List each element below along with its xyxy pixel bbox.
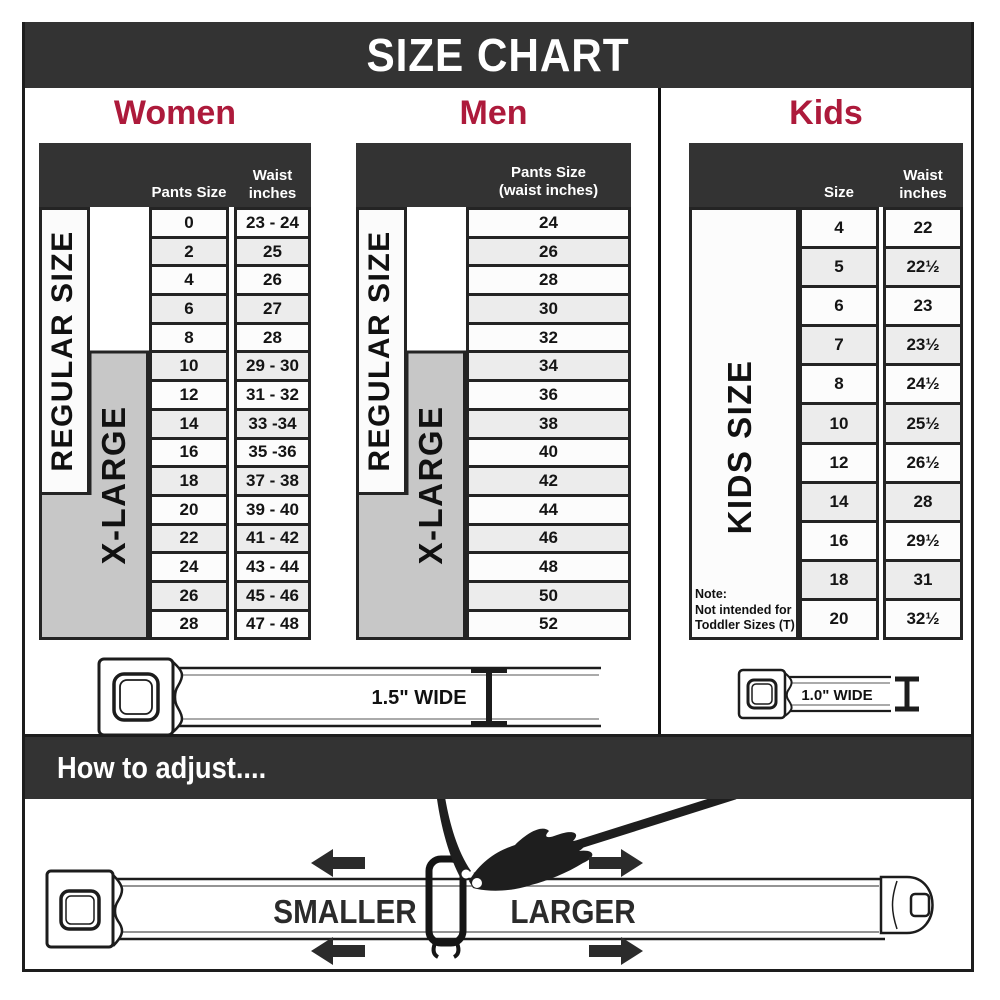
size-cell: 26 [466,236,631,268]
size-cell: 22 [149,523,229,555]
men-heading: Men [356,94,631,133]
waist-cell: 22½ [883,246,963,288]
size-cell: 8 [799,363,879,405]
table-row: 24 43 - 44 [39,551,311,583]
table-row: 26 45 - 46 [39,580,311,612]
belt-width-label: 1.0" WIDE [801,687,872,704]
kids-table: Size Waist inches 4 22 5 [689,143,963,640]
size-cell: 26 [149,580,229,612]
kids-belt-illustration: 1.0" WIDE [733,658,928,730]
size-cell: 4 [799,207,879,249]
arrow-left-icon [311,849,365,877]
size-cell: 38 [466,408,631,440]
size-cell: 10 [799,402,879,444]
waist-cell: 24½ [883,363,963,405]
waist-cell: 31 [883,559,963,601]
table-row: 42 [356,465,631,497]
table-row: 20 39 - 40 [39,494,311,526]
women-table: Pants Size Waist inches 0 23 - 24 [39,143,311,640]
kids-panel: Kids Size Waist inches 4 [658,88,971,734]
waist-cell: 31 - 32 [234,379,311,411]
size-cell: 44 [466,494,631,526]
page-title: SIZE CHART [366,28,629,82]
size-cell: 42 [466,465,631,497]
size-cell: 4 [149,264,229,296]
waist-cell: 47 - 48 [234,609,311,641]
men-table: Pants Size (waist inches) 24 26 28 [356,143,631,640]
women-heading: Women [39,94,311,133]
kids-note-line: Note: [695,587,797,603]
belt-tip-icon [881,877,933,933]
kids-heading: Kids [689,94,963,133]
waist-cell: 25½ [883,402,963,444]
table-row: 12 26½ [689,442,963,484]
waist-cell: 23 [883,285,963,327]
table-row: 8 28 [39,322,311,354]
hand-icon [437,799,592,891]
table-row: 14 33 -34 [39,408,311,440]
size-cell: 8 [149,322,229,354]
kids-note-line: Not intended for [695,603,797,619]
belt-slider-icon [429,859,463,957]
larger-label: LARGER [510,894,636,931]
size-cell: 16 [799,520,879,562]
table-row: 10 29 - 30 [39,350,311,382]
table-row: 7 23½ [689,324,963,366]
waist-cell: 35 -36 [234,437,311,469]
size-cell: 0 [149,207,229,239]
size-cell: 24 [149,551,229,583]
size-cell: 6 [149,293,229,325]
main-area: Women Men Pants Size Waist inches 0 [25,88,971,737]
table-row: 4 22 [689,207,963,249]
size-cell: 14 [799,481,879,523]
chart-frame: SIZE CHART Women Men Pants Size Waist in… [22,22,974,972]
arrow-right-icon [589,937,643,965]
table-row: 38 [356,408,631,440]
size-cell: 16 [149,437,229,469]
waist-cell: 43 - 44 [234,551,311,583]
waist-cell: 26 [234,264,311,296]
table-row: 26 [356,236,631,268]
table-row: 22 41 - 42 [39,523,311,555]
adjust-bar: How to adjust.... [25,737,971,799]
waist-cell: 45 - 46 [234,580,311,612]
size-cell: 28 [149,609,229,641]
size-cell: 40 [466,437,631,469]
table-row: 44 [356,494,631,526]
adult-panel: Women Men Pants Size Waist inches 0 [25,88,658,734]
waist-cell: 28 [883,481,963,523]
waist-cell: 26½ [883,442,963,484]
table-row: 18 37 - 38 [39,465,311,497]
waist-cell: 29 - 30 [234,350,311,382]
waist-cell: 37 - 38 [234,465,311,497]
table-row: 32 [356,322,631,354]
size-cell: 50 [466,580,631,612]
size-cell: 24 [466,207,631,239]
kids-note: Note:Not intended forToddler Sizes (T) [695,587,797,634]
belt-width-label: 1.5" WIDE [371,687,466,709]
waist-cell: 28 [234,322,311,354]
women-table-body: 0 23 - 24 2 25 4 26 [39,207,311,640]
table-row: 2 25 [39,236,311,268]
waist-cell: 23½ [883,324,963,366]
size-cell: 48 [466,551,631,583]
table-row: 24 [356,207,631,239]
size-cell: 18 [799,559,879,601]
size-cell: 6 [799,285,879,327]
table-row: 52 [356,609,631,641]
size-cell: 18 [149,465,229,497]
size-cell: 12 [799,442,879,484]
kids-note-line: Toddler Sizes (T) [695,618,797,634]
table-row: 6 27 [39,293,311,325]
column-header-size: Size [799,184,879,202]
size-cell: 2 [149,236,229,268]
belt-buckle-icon [47,871,122,947]
table-row: 36 [356,379,631,411]
size-cell: 7 [799,324,879,366]
table-row: 10 25½ [689,402,963,444]
waist-cell: 32½ [883,598,963,640]
table-row: 40 [356,437,631,469]
table-row: 4 26 [39,264,311,296]
belt-buckle-icon [99,659,173,735]
table-row: 14 28 [689,481,963,523]
size-chart-page: SIZE CHART Women Men Pants Size Waist in… [0,0,1000,1000]
table-row: 46 [356,523,631,555]
size-cell: 34 [466,350,631,382]
adjust-illustration: SMALLER LARGER [25,799,971,969]
table-row: 28 47 - 48 [39,609,311,641]
table-row: 34 [356,350,631,382]
size-cell: 5 [799,246,879,288]
kids-table-header: Size Waist inches [689,143,963,207]
arrow-left-icon [311,937,365,965]
waist-cell: 27 [234,293,311,325]
size-cell: 10 [149,350,229,382]
adjust-illustration-area: SMALLER LARGER [25,799,971,969]
table-row: 30 [356,293,631,325]
belt-buckle-icon [739,670,785,718]
women-table-header: Pants Size Waist inches [39,143,311,207]
column-header-waist: Waist inches [234,167,311,203]
table-row: 6 23 [689,285,963,327]
waist-cell: 29½ [883,520,963,562]
table-row: 12 31 - 32 [39,379,311,411]
waist-cell: 39 - 40 [234,494,311,526]
waist-cell: 22 [883,207,963,249]
arrow-right-icon [589,849,643,877]
size-cell: 36 [466,379,631,411]
size-cell: 46 [466,523,631,555]
table-row: 0 23 - 24 [39,207,311,239]
kids-table-body: 4 22 5 22½ 6 23 [689,207,963,640]
men-table-body: 24 26 28 30 32 [356,207,631,640]
table-row: 48 [356,551,631,583]
size-cell: 20 [799,598,879,640]
table-row: 16 29½ [689,520,963,562]
adult-belt-illustration: 1.5" WIDE [83,650,623,742]
table-row: 5 22½ [689,246,963,288]
size-cell: 12 [149,379,229,411]
width-marker-icon [895,679,919,709]
waist-cell: 23 - 24 [234,207,311,239]
width-marker-icon [471,670,507,724]
size-cell: 32 [466,322,631,354]
adjust-title: How to adjust.... [57,750,266,786]
waist-cell: 33 -34 [234,408,311,440]
smaller-label: SMALLER [273,894,417,931]
table-row: 50 [356,580,631,612]
size-cell: 20 [149,494,229,526]
size-cell: 30 [466,293,631,325]
waist-cell: 25 [234,236,311,268]
column-header-pants-size: Pants Size (waist inches) [466,164,631,200]
column-header-pants-size: Pants Size [149,184,229,202]
table-row: 28 [356,264,631,296]
title-bar: SIZE CHART [25,22,971,88]
column-header-waist: Waist inches [883,167,963,203]
table-row: 8 24½ [689,363,963,405]
men-table-header: Pants Size (waist inches) [356,143,631,207]
size-cell: 52 [466,609,631,641]
table-row: 16 35 -36 [39,437,311,469]
size-cell: 14 [149,408,229,440]
waist-cell: 41 - 42 [234,523,311,555]
size-cell: 28 [466,264,631,296]
